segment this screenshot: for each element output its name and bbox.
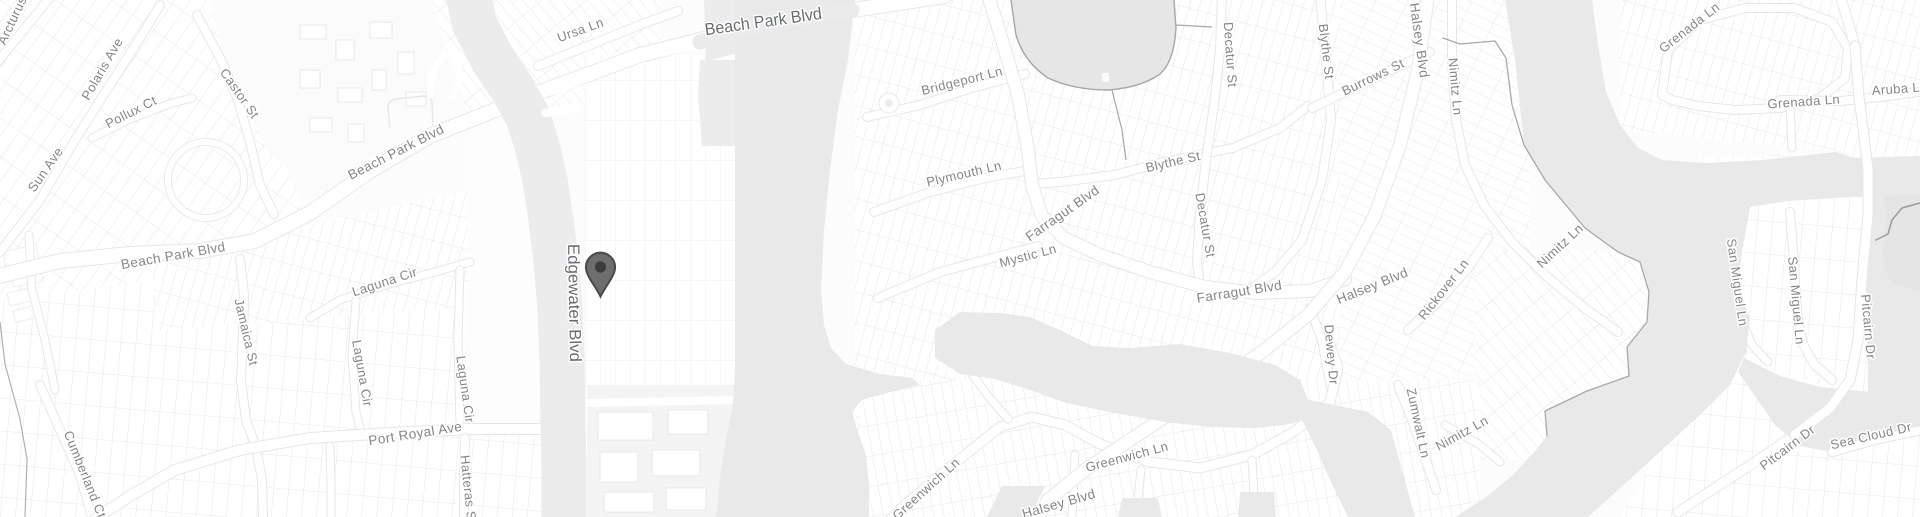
svg-text:Aruba Ln: Aruba Ln bbox=[1871, 79, 1920, 98]
svg-text:Edgewater Blvd: Edgewater Blvd bbox=[564, 244, 584, 362]
